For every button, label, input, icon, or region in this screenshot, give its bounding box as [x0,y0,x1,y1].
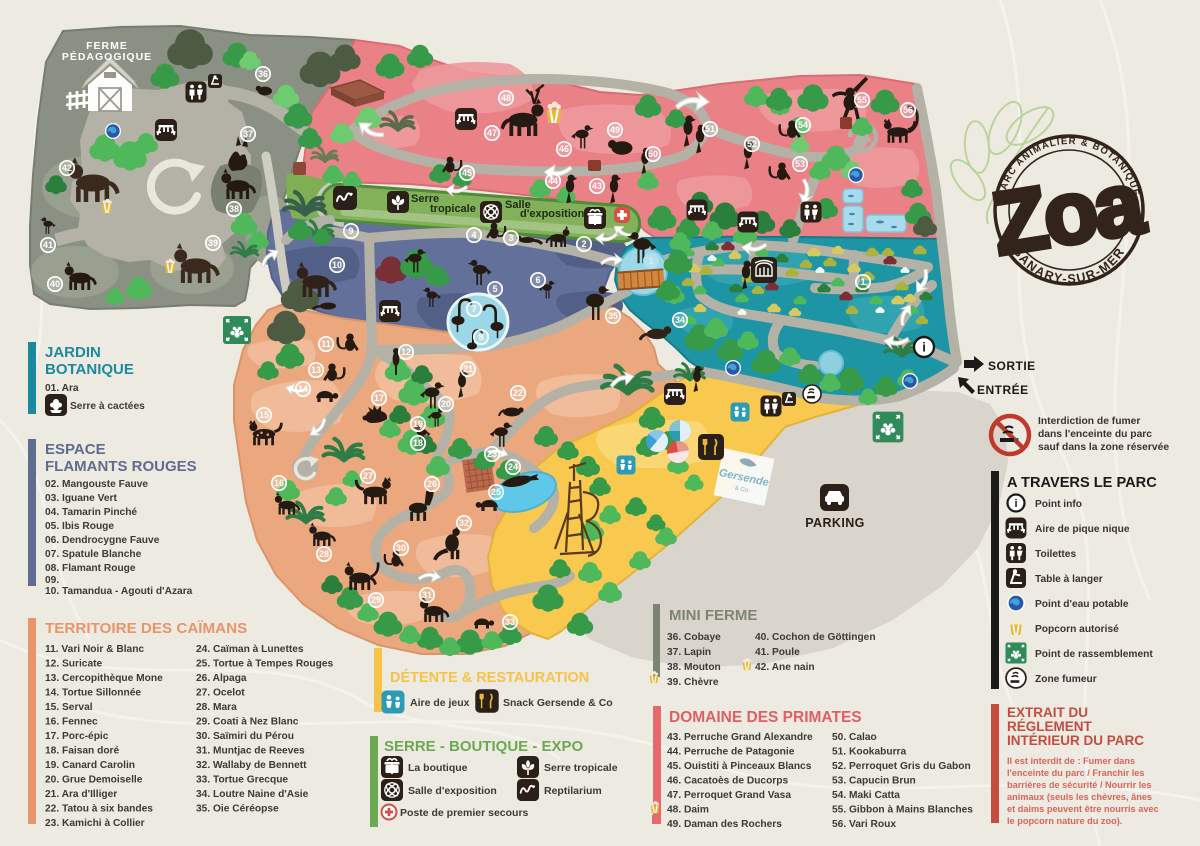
svg-text:13: 13 [311,365,321,375]
svg-text:24. Caïman à Lunettes: 24. Caïman à Lunettes [196,644,304,655]
svg-text:Popcorn autorisé: Popcorn autorisé [1035,624,1119,635]
svg-text:10. Tamandua - Agouti d'Azara: 10. Tamandua - Agouti d'Azara [45,586,193,597]
svg-text:28: 28 [319,549,329,559]
svg-text:44: 44 [548,176,558,186]
svg-text:12: 12 [401,347,411,357]
svg-text:2: 2 [581,239,586,249]
svg-text:19: 19 [413,419,423,429]
svg-text:41. Poule: 41. Poule [755,647,800,658]
svg-text:16: 16 [274,478,284,488]
svg-text:40: 40 [50,279,60,289]
svg-text:33. Tortue Grecque: 33. Tortue Grecque [196,775,288,786]
svg-text:53: 53 [795,159,805,169]
svg-text:A TRAVERS LE PARC: A TRAVERS LE PARC [1007,475,1157,491]
svg-text:22: 22 [513,388,523,398]
svg-text:Point d'eau potable: Point d'eau potable [1035,599,1129,610]
svg-text:20. Grue Demoiselle: 20. Grue Demoiselle [45,775,143,786]
svg-text:39: 39 [208,238,218,248]
svg-text:37: 37 [243,129,253,139]
svg-text:sauf dans la zone réservée: sauf dans la zone réservée [1038,442,1169,453]
svg-text:SORTIE: SORTIE [988,359,1036,373]
svg-text:FLAMANTS ROUGES: FLAMANTS ROUGES [45,458,197,475]
svg-text:le popcorn nature du zoo).: le popcorn nature du zoo). [1007,816,1122,826]
svg-text:45: 45 [462,168,472,178]
svg-text:51: 51 [705,124,715,134]
svg-text:14. Tortue Sillonnée: 14. Tortue Sillonnée [45,688,141,699]
svg-text:38: 38 [229,204,239,214]
svg-text:27: 27 [363,471,373,481]
svg-text:08. Flamant Rouge: 08. Flamant Rouge [45,563,136,574]
svg-text:28. Mara: 28. Mara [196,702,237,713]
svg-text:20: 20 [441,399,451,409]
svg-text:Aire de jeux: Aire de jeux [410,697,470,709]
svg-text:21: 21 [463,364,473,374]
svg-text:11: 11 [321,339,331,349]
svg-text:30: 30 [396,543,406,553]
svg-text:15. Serval: 15. Serval [45,702,93,713]
svg-text:56. Vari Roux: 56. Vari Roux [832,819,896,830]
svg-text:ESPACE: ESPACE [45,441,106,458]
svg-text:24: 24 [508,462,518,472]
svg-text:39. Chèvre: 39. Chèvre [667,677,719,688]
svg-text:Table à langer: Table à langer [1035,574,1103,585]
svg-text:18. Faisan doré: 18. Faisan doré [45,746,120,757]
svg-text:04. Tamarin Pinché: 04. Tamarin Pinché [45,507,137,518]
svg-text:48. Daim: 48. Daim [667,805,709,816]
svg-text:EXTRAIT DU: EXTRAIT DU [1007,705,1088,720]
svg-text:25: 25 [491,487,501,497]
svg-text:Point de rassemblement: Point de rassemblement [1035,649,1153,660]
svg-text:Serre à cactées: Serre à cactées [70,401,145,412]
svg-text:45. Ouistiti à Pinceaux Blancs: 45. Ouistiti à Pinceaux Blancs [667,761,812,772]
svg-text:9: 9 [348,226,353,236]
svg-text:46: 46 [559,144,569,154]
svg-text:31. Muntjac de Reeves: 31. Muntjac de Reeves [196,746,305,757]
svg-text:17: 17 [374,393,384,403]
svg-text:13. Cercopithèque Mone: 13. Cercopithèque Mone [45,673,163,684]
svg-text:30. Saïmiri du Pérou: 30. Saïmiri du Pérou [196,731,294,742]
svg-text:03. Iguane Vert: 03. Iguane Vert [45,493,118,504]
svg-text:animaux (seuls les chèvres, ân: animaux (seuls les chèvres, ânes [1007,792,1152,802]
svg-text:et daims peuvent être nourris: et daims peuvent être nourris avec [1007,804,1159,814]
svg-text:09.: 09. [45,575,59,586]
svg-text:54. Maki Catta: 54. Maki Catta [832,790,900,801]
svg-text:35. Oie Céréopse: 35. Oie Céréopse [196,804,279,815]
svg-text:Zone fumeur: Zone fumeur [1035,674,1097,685]
svg-text:Poste de premier secours: Poste de premier secours [400,807,529,819]
svg-text:La boutique: La boutique [408,762,468,774]
svg-text:36: 36 [258,69,268,79]
svg-text:1: 1 [860,277,865,287]
svg-text:51. Kookaburra: 51. Kookaburra [832,747,907,758]
svg-text:35: 35 [608,311,618,321]
svg-text:TERRITOIRE DES CAÏMANS: TERRITOIRE DES CAÏMANS [45,620,247,637]
svg-text:49: 49 [610,125,620,135]
svg-text:12. Suricate: 12. Suricate [45,659,103,670]
svg-text:d'exposition: d'exposition [520,208,585,220]
svg-text:41: 41 [43,240,53,250]
svg-text:32. Wallaby de Bennett: 32. Wallaby de Bennett [196,760,307,771]
svg-text:06. Dendrocygne Fauve: 06. Dendrocygne Fauve [45,535,160,546]
svg-text:1: 1 [648,256,653,266]
svg-text:54: 54 [798,120,808,130]
svg-text:52. Perroquet Gris du Gabon: 52. Perroquet Gris du Gabon [832,761,971,772]
svg-text:31: 31 [422,590,432,600]
svg-text:tropicale: tropicale [430,203,476,215]
svg-text:47: 47 [487,128,497,138]
svg-text:Salle d'exposition: Salle d'exposition [408,785,497,797]
svg-text:32: 32 [459,518,469,528]
svg-text:i: i [1014,498,1017,510]
svg-text:ENTRÉE: ENTRÉE [977,382,1029,397]
svg-text:22. Tatou à six bandes: 22. Tatou à six bandes [45,804,153,815]
svg-text:23: 23 [487,449,497,459]
svg-text:43: 43 [592,181,602,191]
svg-text:49. Daman des Rochers: 49. Daman des Rochers [667,819,782,830]
svg-text:l'enceinte du parc / Franchir: l'enceinte du parc / Franchir les [1007,768,1145,778]
svg-text:DOMAINE DES PRIMATES: DOMAINE DES PRIMATES [669,709,862,726]
svg-text:8: 8 [478,332,483,342]
svg-text:42. Ane nain: 42. Ane nain [755,662,815,673]
svg-text:14: 14 [298,384,308,394]
svg-text:55. Gibbon à Mains Blanches: 55. Gibbon à Mains Blanches [832,805,973,816]
svg-text:34. Loutre Naine d'Asie: 34. Loutre Naine d'Asie [196,789,309,800]
svg-text:27. Ocelot: 27. Ocelot [196,688,245,699]
svg-text:02. Mangouste Fauve: 02. Mangouste Fauve [45,479,148,490]
svg-text:50. Calao: 50. Calao [832,732,877,743]
svg-text:17. Porc-épic: 17. Porc-épic [45,731,109,742]
svg-text:Snack Gersende & Co: Snack Gersende & Co [503,697,613,709]
svg-text:52: 52 [747,139,757,149]
svg-text:05. Ibis Rouge: 05. Ibis Rouge [45,521,114,532]
svg-text:11. Vari Noir & Blanc: 11. Vari Noir & Blanc [45,644,144,655]
svg-text:29: 29 [371,595,381,605]
svg-text:18: 18 [413,438,423,448]
svg-text:38. Mouton: 38. Mouton [667,662,721,673]
svg-text:PÉDAGOGIQUE: PÉDAGOGIQUE [62,50,152,63]
svg-text:BOTANIQUE: BOTANIQUE [45,361,134,378]
svg-text:16. Fennec: 16. Fennec [45,717,98,728]
svg-text:Il est interdit de : Fumer dan: Il est interdit de : Fumer dans [1007,756,1135,766]
svg-text:56: 56 [903,105,913,115]
svg-text:40. Cochon de Göttingen: 40. Cochon de Göttingen [755,632,876,643]
svg-text:7: 7 [471,304,476,314]
svg-text:6: 6 [535,275,540,285]
svg-text:dans l'enceinte du parc: dans l'enceinte du parc [1038,429,1152,440]
svg-text:34: 34 [675,315,685,325]
svg-text:Toilettes: Toilettes [1035,549,1076,560]
svg-text:50: 50 [648,149,658,159]
svg-text:21. Ara d'Illiger: 21. Ara d'Illiger [45,789,117,800]
svg-text:48: 48 [501,93,511,103]
svg-text:PARKING: PARKING [805,516,865,530]
svg-text:10: 10 [332,260,342,270]
svg-text:MINI FERME: MINI FERME [669,607,757,624]
svg-text:DÉTENTE & RESTAURATION: DÉTENTE & RESTAURATION [390,669,589,686]
svg-text:43. Perruche Grand Alexandre: 43. Perruche Grand Alexandre [667,732,813,743]
svg-text:INTÉRIEUR DU PARC: INTÉRIEUR DU PARC [1007,733,1144,748]
svg-text:Reptilarium: Reptilarium [544,785,602,797]
svg-text:Point info: Point info [1035,499,1082,510]
svg-text:4: 4 [471,230,476,240]
svg-text:42: 42 [62,163,72,173]
svg-text:5: 5 [492,284,497,294]
svg-text:01. Ara: 01. Ara [45,383,79,394]
svg-text:29. Coati à Nez Blanc: 29. Coati à Nez Blanc [196,717,299,728]
svg-text:33: 33 [505,617,515,627]
svg-text:Interdiction de fumer: Interdiction de fumer [1038,416,1140,427]
svg-text:23. Kamichi à Collier: 23. Kamichi à Collier [45,818,145,829]
svg-text:barrières de sécurité / Nourri: barrières de sécurité / Nourrir les [1007,780,1152,790]
svg-text:Aire de pique nique: Aire de pique nique [1035,524,1130,535]
svg-text:3: 3 [508,233,513,243]
svg-text:Serre tropicale: Serre tropicale [544,762,618,774]
svg-text:07. Spatule Blanche: 07. Spatule Blanche [45,549,142,560]
svg-text:55: 55 [857,95,867,105]
svg-text:25. Tortue à Tempes Rouges: 25. Tortue à Tempes Rouges [196,659,334,670]
svg-text:15: 15 [259,410,269,420]
svg-text:JARDIN: JARDIN [45,344,101,361]
svg-text:47. Perroquet Grand Vasa: 47. Perroquet Grand Vasa [667,790,791,801]
svg-text:RÉGLEMENT: RÉGLEMENT [1007,719,1093,734]
svg-text:44. Perruche de Patagonie: 44. Perruche de Patagonie [667,747,795,758]
svg-text:SERRE - BOUTIQUE - EXPO: SERRE - BOUTIQUE - EXPO [384,738,584,755]
svg-text:26. Alpaga: 26. Alpaga [196,673,247,684]
svg-text:46. Cacatoès de Ducorps: 46. Cacatoès de Ducorps [667,776,788,787]
svg-text:26: 26 [427,479,437,489]
svg-text:36. Cobaye: 36. Cobaye [667,632,721,643]
svg-text:37. Lapin: 37. Lapin [667,647,711,658]
svg-text:19. Canard Carolin: 19. Canard Carolin [45,760,135,771]
svg-text:53. Capucin Brun: 53. Capucin Brun [832,776,916,787]
